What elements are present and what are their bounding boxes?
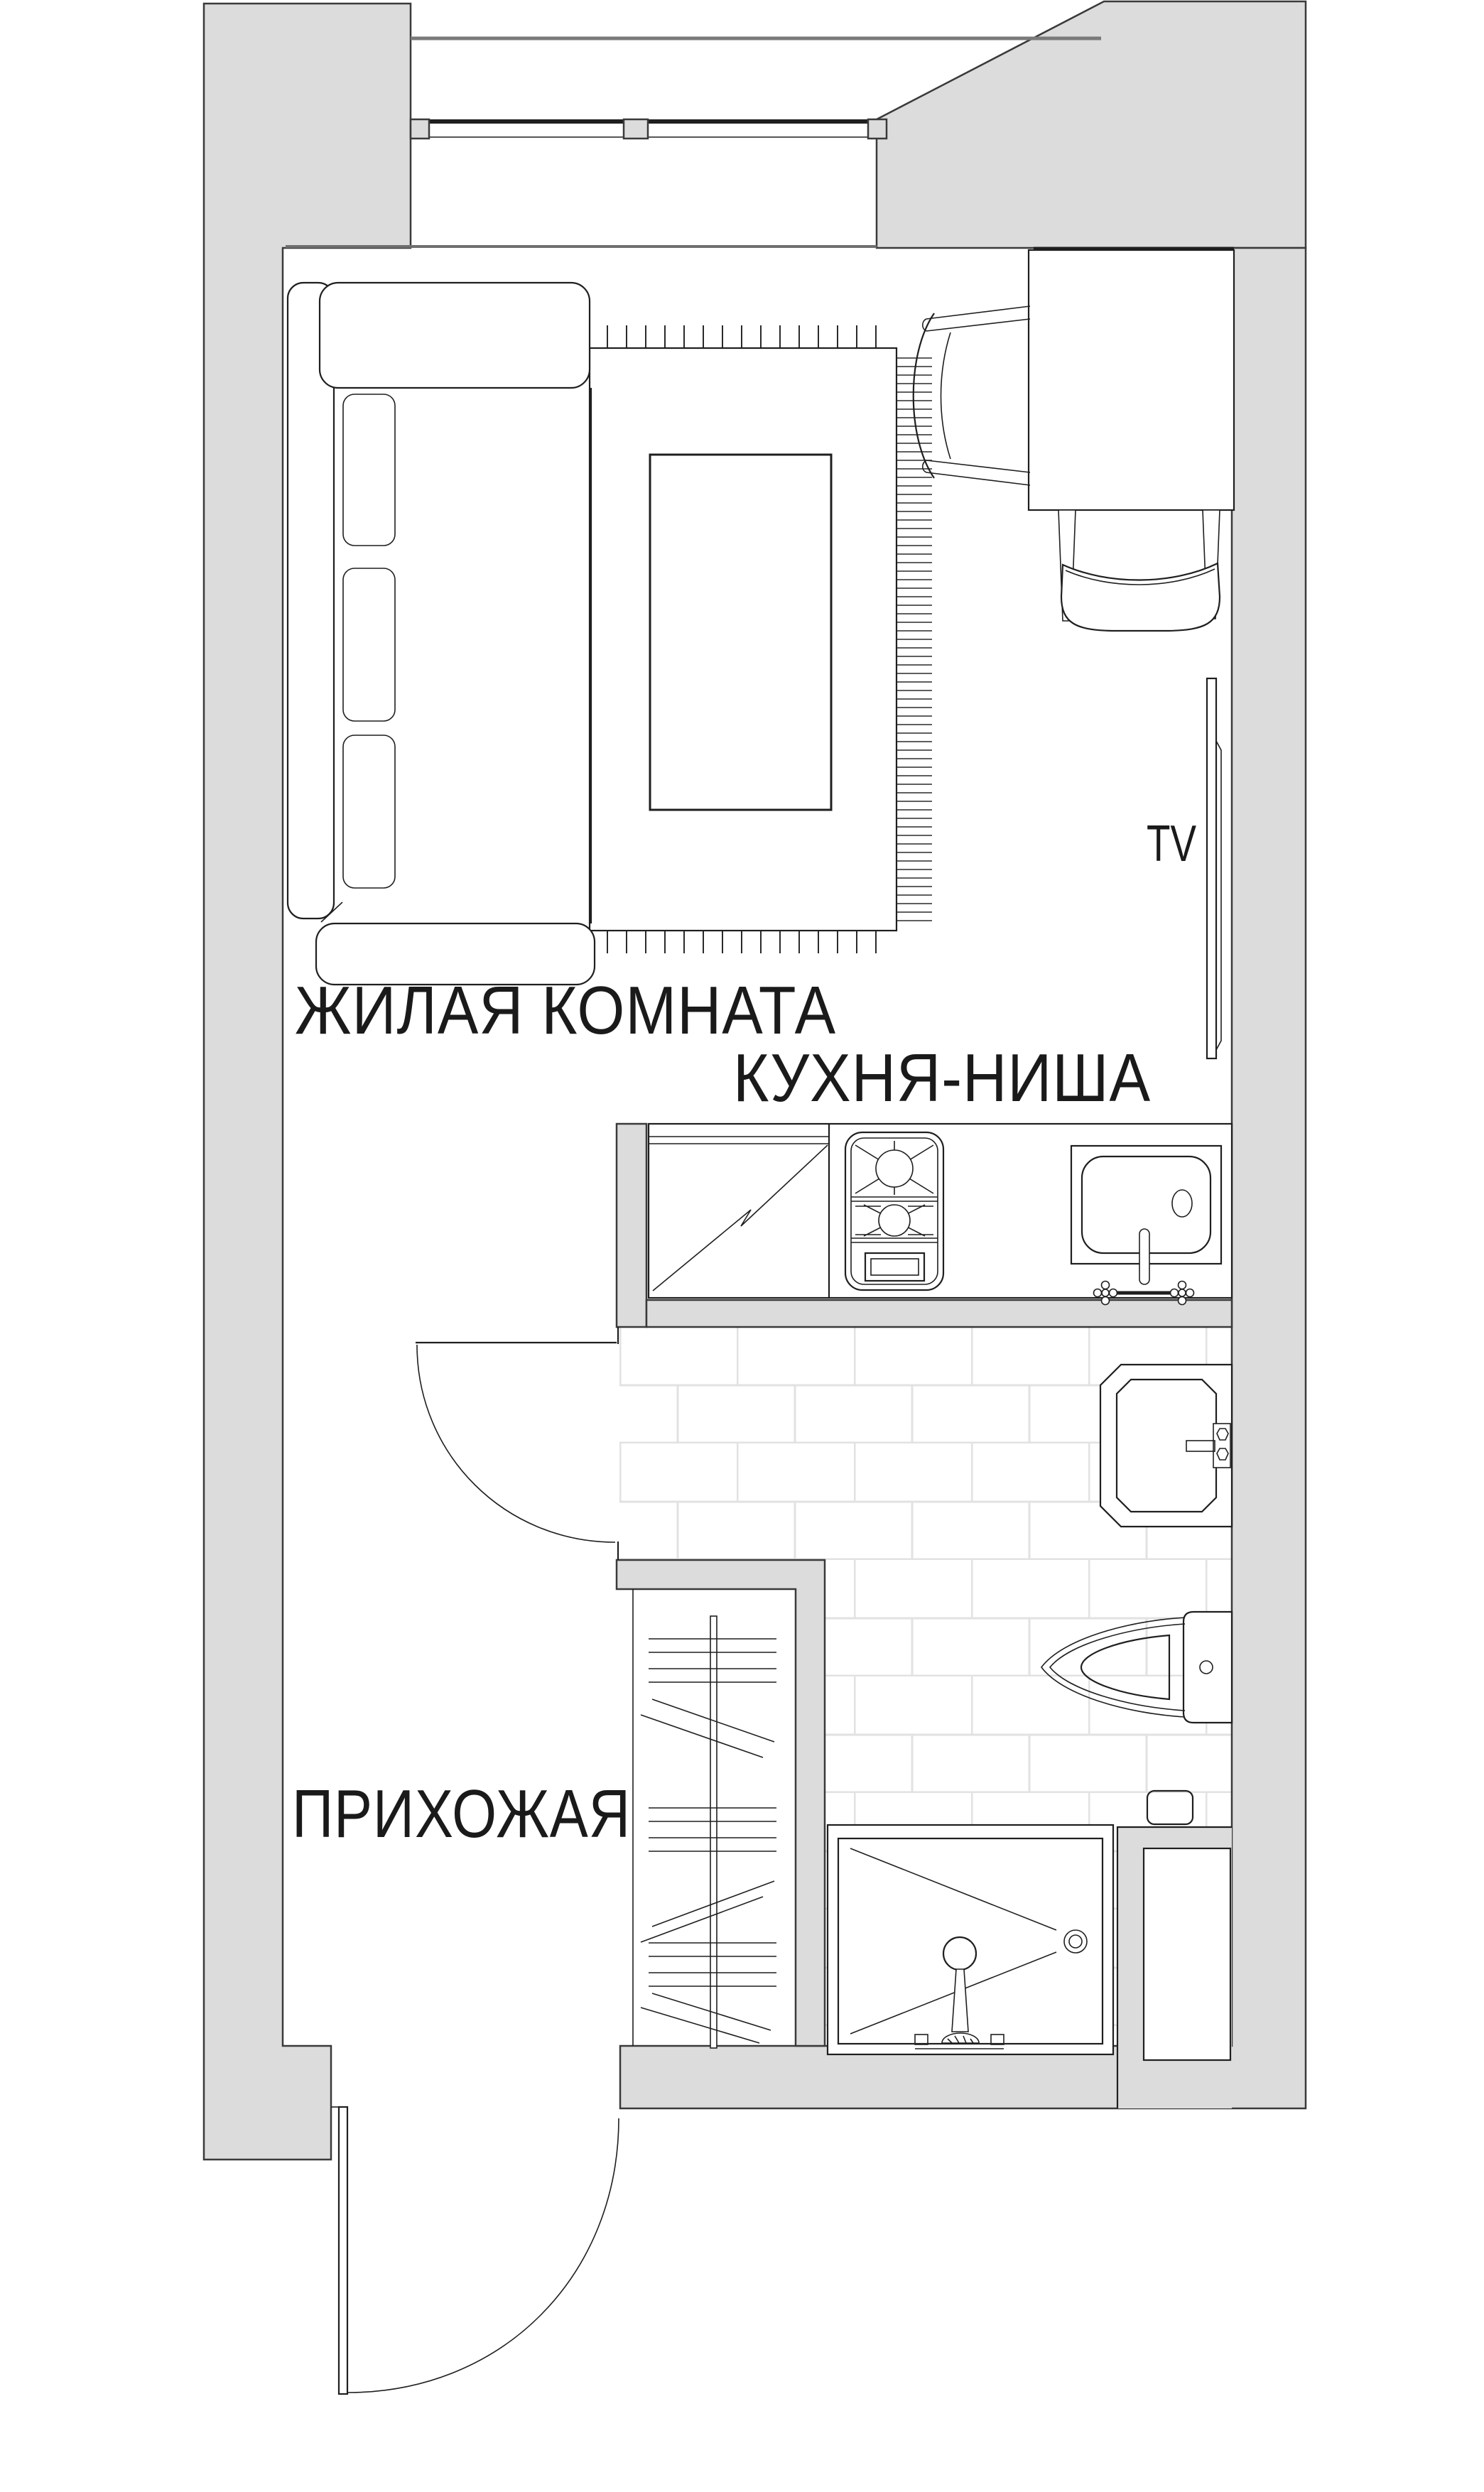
entry-door bbox=[331, 2107, 619, 2394]
low-table bbox=[650, 455, 831, 810]
chair-west-armrest-bottom bbox=[923, 460, 1030, 485]
rug bbox=[590, 325, 932, 953]
tv-panel bbox=[1207, 678, 1216, 1058]
burner-front bbox=[876, 1150, 913, 1187]
wardrobe-rail bbox=[710, 1616, 717, 2048]
sofa-cushion-3 bbox=[343, 735, 395, 888]
chair-south bbox=[1058, 510, 1220, 631]
desk bbox=[1029, 250, 1234, 510]
burner-rear bbox=[879, 1205, 910, 1236]
bathroom-door bbox=[416, 1343, 617, 1542]
kitchen-label: КУХНЯ-НИША bbox=[733, 1040, 1151, 1116]
shower-outer bbox=[828, 1825, 1113, 2054]
bathroom-top-wall bbox=[646, 1300, 1232, 1327]
kitchen-faucet-spout bbox=[1139, 1229, 1149, 1284]
sofa-cushion-2 bbox=[343, 568, 395, 721]
chair-west-back-inner bbox=[941, 332, 951, 459]
hallway-label: ПРИХОЖАЯ bbox=[292, 1776, 631, 1852]
bathroom-sink bbox=[1100, 1365, 1232, 1527]
desk-area bbox=[914, 250, 1234, 631]
chair-south-backrest bbox=[1061, 563, 1220, 631]
bathroom-faucet-knob-top bbox=[1217, 1429, 1228, 1440]
window-mullion-middle bbox=[624, 119, 648, 139]
sofa-armrest-top bbox=[320, 283, 590, 388]
entry-door-leaf bbox=[339, 2107, 347, 2394]
window-mullion-left bbox=[411, 119, 429, 139]
chair-west-armrest-top bbox=[923, 306, 1030, 331]
tv-label: TV bbox=[1147, 816, 1196, 872]
sofa-cushion-1 bbox=[343, 394, 395, 546]
window-mullion-right bbox=[868, 119, 887, 139]
shower-head bbox=[943, 1937, 976, 1970]
entry-door-swing bbox=[347, 2118, 619, 2393]
sofa bbox=[288, 283, 595, 985]
kitchen-side-wall bbox=[617, 1124, 646, 1327]
storage-niche bbox=[1144, 1848, 1230, 2060]
bathroom-faucet-knob-bottom bbox=[1217, 1448, 1228, 1460]
living-room: TV ЖИЛАЯ КОМНАТА bbox=[288, 250, 1234, 1058]
rug-fringe-top bbox=[598, 325, 892, 348]
bathroom-door-swing bbox=[417, 1345, 615, 1542]
rug-fringe-right bbox=[897, 354, 932, 928]
kitchen: КУХНЯ-НИША bbox=[649, 1040, 1232, 1305]
toilet-tank bbox=[1184, 1612, 1232, 1723]
shower bbox=[828, 1825, 1113, 2054]
cooktop bbox=[845, 1132, 943, 1290]
floorplan-canvas: TV ЖИЛАЯ КОМНАТА КУХНЯ-НИША bbox=[0, 0, 1484, 2492]
rug-fringe-bottom bbox=[598, 931, 892, 953]
tv: TV bbox=[1147, 678, 1221, 1058]
living-room-label: ЖИЛАЯ КОМНАТА bbox=[295, 973, 836, 1049]
